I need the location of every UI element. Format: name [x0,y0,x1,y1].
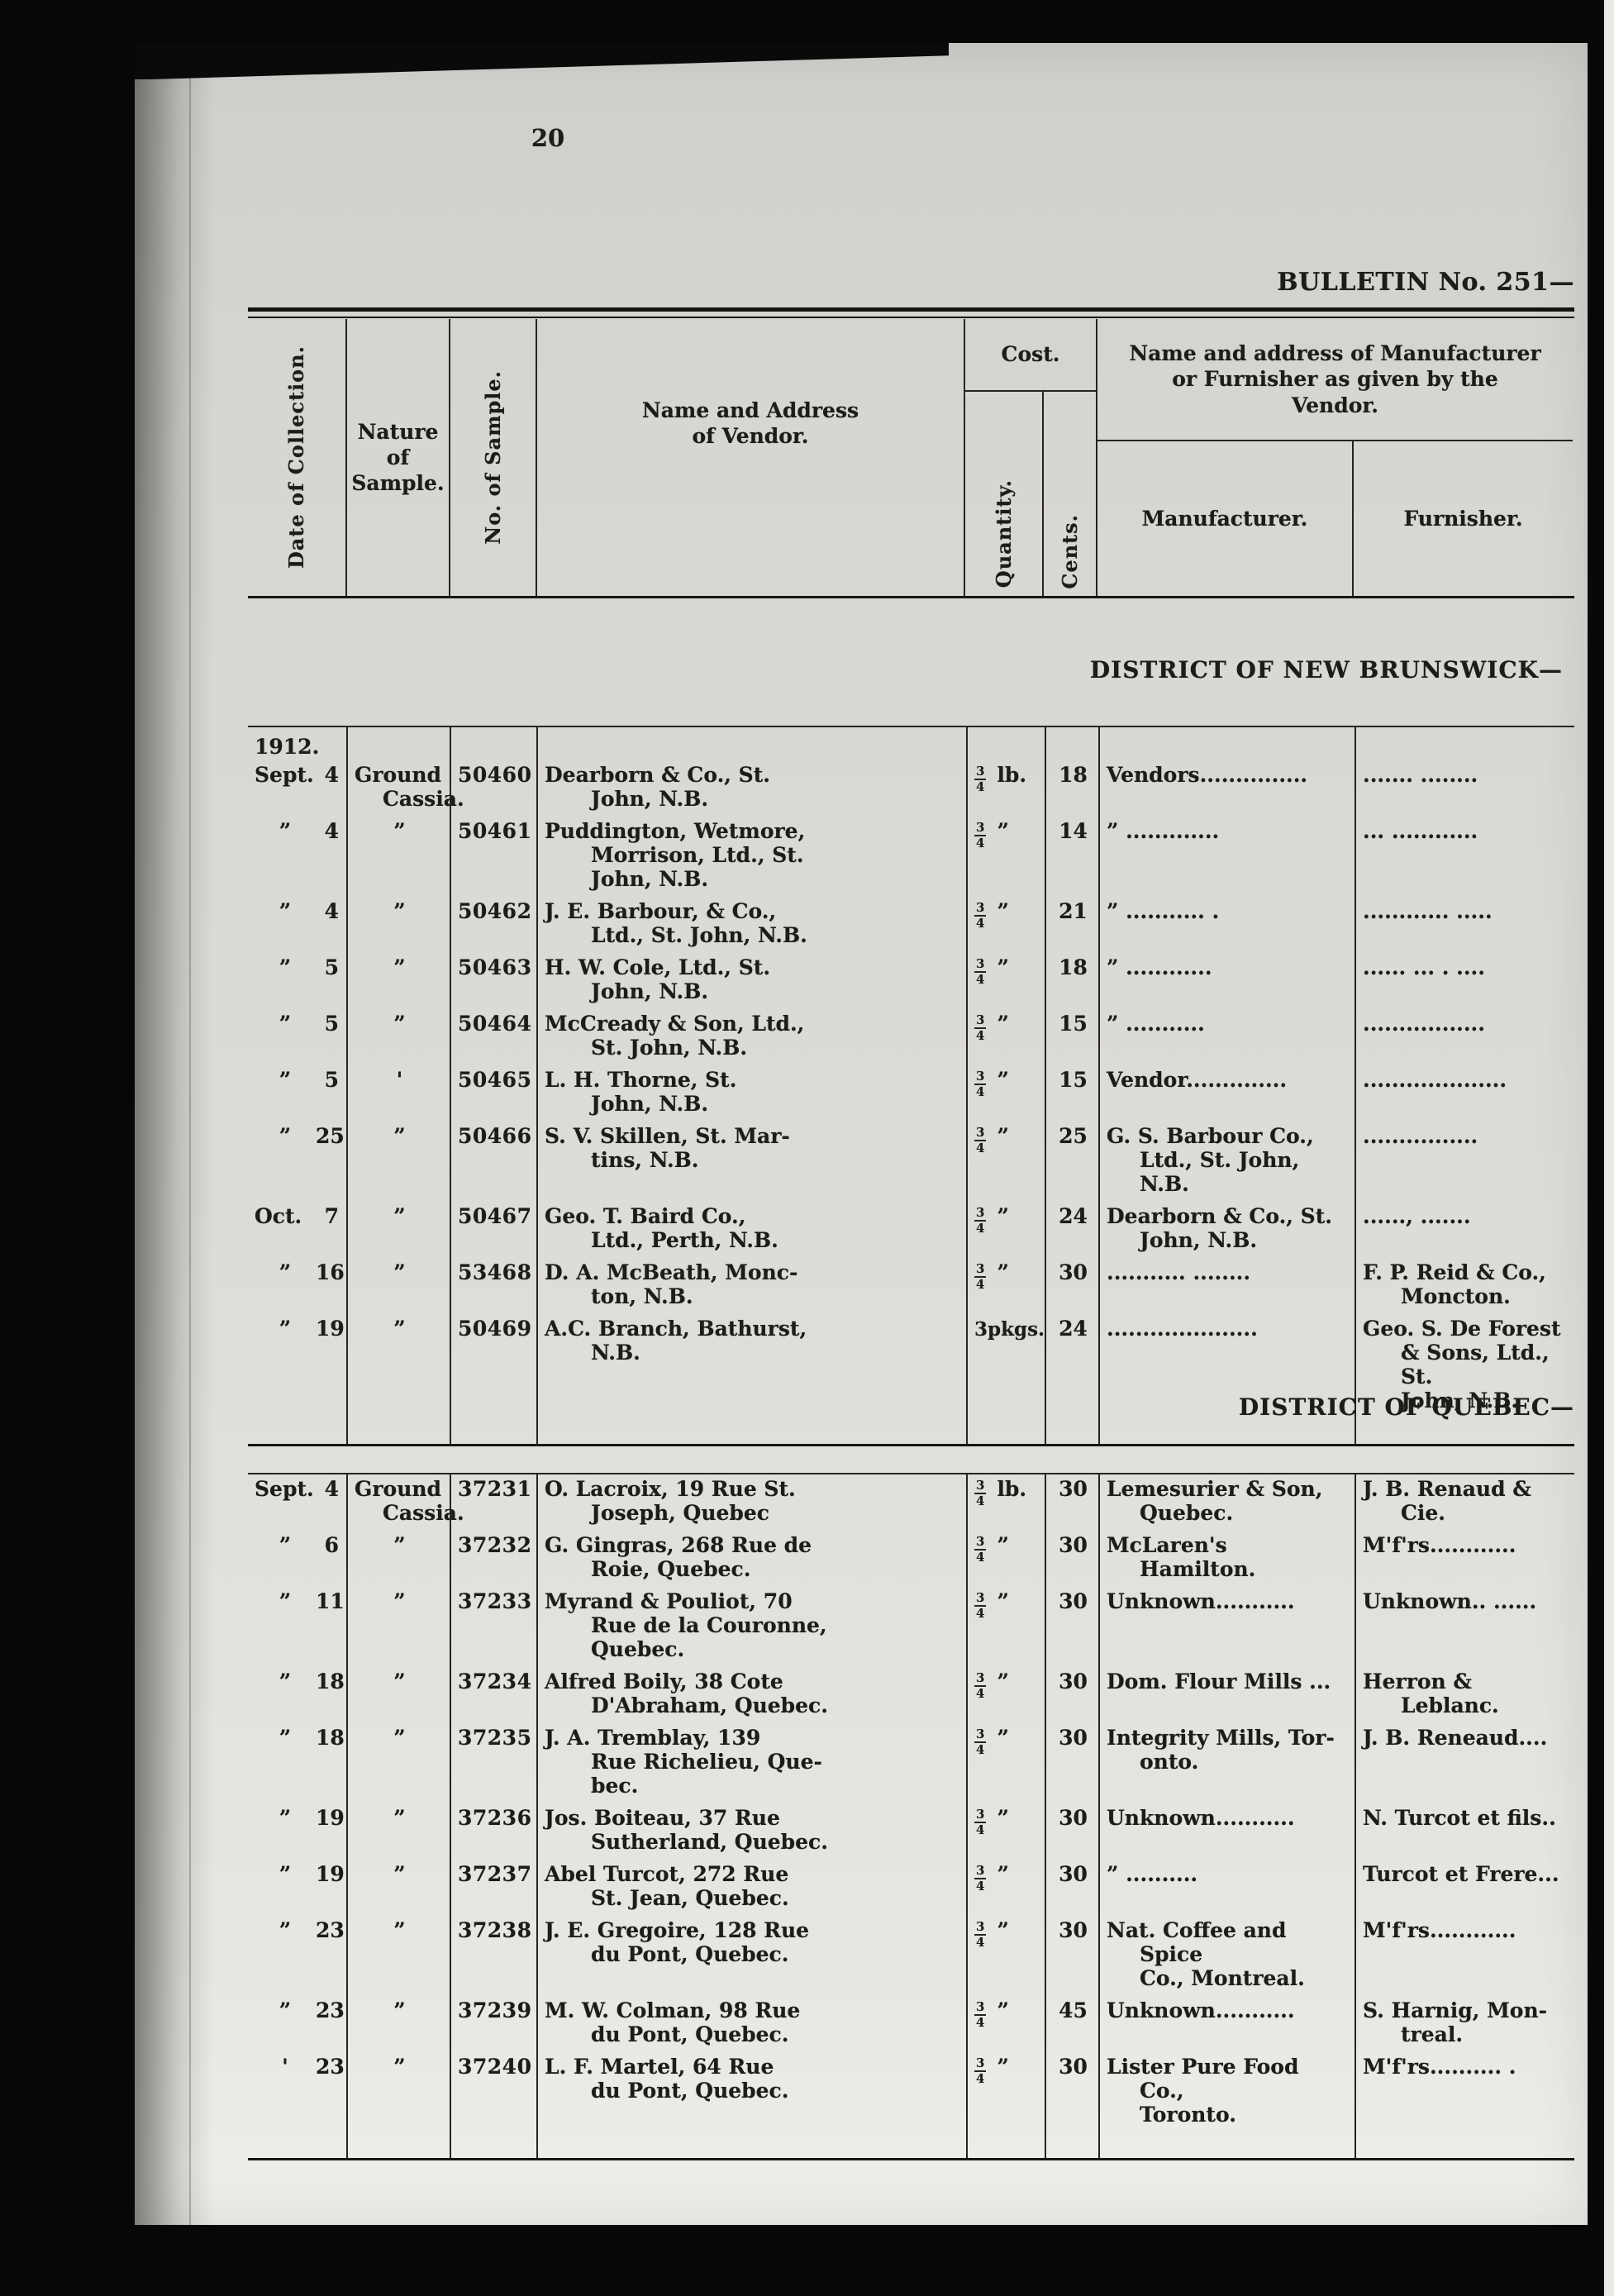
furnisher-text: ............ ..... [1363,899,1569,923]
col-header-sample-no-label: No. of Sample. [481,370,506,545]
cell-cents: 30 [1045,1916,1099,1996]
cell-sample-no: 50463 [450,953,537,1009]
date-day: 11 [316,1589,339,1613]
cell-vendor: McCready & Son, Ltd., St. John, N.B. [537,1009,967,1065]
cell-sample-no: 50465 [450,1065,537,1122]
cell-nature: ” [347,953,450,1009]
fraction-denominator: 4 [976,1222,984,1235]
cell-quantity: 34lb. [967,1474,1045,1531]
vendor-text: Myrand & Pouliot, 70 Rue de la Couronne,… [545,1589,961,1661]
cell-vendor: Myrand & Pouliot, 70 Rue de la Couronne,… [537,1587,967,1667]
date-month: ' [255,2055,316,2079]
cell-manufacturer: ” ........... . [1099,897,1355,953]
manufacturer-text: Vendor.............. [1107,1068,1350,1092]
cell-vendor: Jos. Boiteau, 37 Rue Sutherland, Quebec. [537,1803,967,1860]
cell-furnisher: ................. [1355,1009,1574,1065]
cell-furnisher: J. B. Renaud & Cie. [1355,1474,1574,1531]
table-row: ”5”50463H. W. Cole, Ltd., St. John, N.B.… [248,953,1574,1009]
quantity-unit: ” [997,899,1008,923]
vendor-text: L. H. Thorne, St. John, N.B. [545,1068,961,1116]
date-month: Oct. [255,1204,316,1228]
new-brunswick-table: 1912.Sept.4Ground Cassia.50460Dearborn &… [248,726,1574,1446]
table-row: ”19”37236Jos. Boiteau, 37 Rue Sutherland… [248,1803,1574,1860]
col-header-furnisher-label: Furnisher. [1403,506,1522,531]
nature-text: ” [355,1670,445,1693]
cell-nature: ” [347,1803,450,1860]
bulletin-heading: BULLETIN No. 251— [1277,268,1574,297]
col-header-cents-label: Cents. [1058,514,1083,589]
cell-date: Sept.4 [248,1474,347,1531]
cell-furnisher: Herron & Leblanc. [1355,1667,1574,1723]
col-header-manufacturer-group: Name and address of Manufacturer or Furn… [1097,319,1573,596]
date-day: 5 [316,955,339,979]
fraction-numerator: 3 [974,1263,986,1278]
quantity-unit: ” [997,1806,1008,1830]
quantity-unit: ” [997,1260,1008,1284]
date-day: 4 [316,763,339,787]
cell-nature [347,726,450,760]
fraction-denominator: 4 [976,1141,984,1155]
scan-edge-right [1604,0,1614,2296]
furnisher-text: M'f'rs............ [1363,1533,1569,1557]
cell-quantity: 3pkgs. [967,1314,1045,1446]
manufacturer-text: ” ........... [1107,1012,1350,1036]
date-day: 25 [316,1124,339,1148]
cell-furnisher: Unknown.. ...... [1355,1587,1574,1667]
fraction-denominator: 4 [976,836,984,850]
cell-cents: 30 [1045,2052,1099,2160]
table-row: ”16”53468D. A. McBeath, Monc- ton, N.B.3… [248,1258,1574,1314]
cell-vendor: H. W. Cole, Ltd., St. John, N.B. [537,953,967,1009]
cell-quantity: 34” [967,953,1045,1009]
col-header-date-label: Date of Collection. [284,345,309,569]
manufacturer-text: ” ............ [1107,955,1350,979]
date-day: 23 [316,2055,339,2079]
cell-vendor: S. V. Skillen, St. Mar- tins, N.B. [537,1122,967,1202]
cell-date: ”19 [248,1803,347,1860]
cell-sample-no: 53468 [450,1258,537,1314]
cell-vendor: Puddington, Wetmore, Morrison, Ltd., St.… [537,817,967,897]
cell-cents: 30 [1045,1860,1099,1916]
cell-quantity: 34” [967,1122,1045,1202]
vendor-text: S. V. Skillen, St. Mar- tins, N.B. [545,1124,961,1172]
quantity-fraction: 34 [974,1536,986,1564]
date-month: ” [255,1260,316,1284]
nature-text: ” [355,1533,445,1557]
date-month: ” [255,1012,316,1036]
date-month: ” [255,1124,316,1148]
cell-vendor: Geo. T. Baird Co., Ltd., Perth, N.B. [537,1202,967,1258]
cell-furnisher: .................... [1355,1065,1574,1122]
scanned-page: { "colors": { "background": "#070707", "… [0,0,1614,2296]
cell-manufacturer: Unknown........... [1099,1803,1355,1860]
table-row: ”18”37235J. A. Tremblay, 139 Rue Richeli… [248,1723,1574,1803]
date-month: Sept. [255,763,316,787]
fraction-numerator: 3 [974,1014,986,1029]
cell-furnisher: S. Harnig, Mon- treal. [1355,1996,1574,2052]
cell-vendor: G. Gingras, 268 Rue de Roie, Quebec. [537,1531,967,1587]
cell-sample-no: 37237 [450,1860,537,1916]
vendor-text: D. A. McBeath, Monc- ton, N.B. [545,1260,961,1308]
date-day: 4 [316,899,339,923]
cell-nature: ” [347,1122,450,1202]
furnisher-text: S. Harnig, Mon- treal. [1363,1998,1569,2046]
quantity-fraction: 34 [974,822,986,850]
quantity-unit: ” [997,1533,1008,1557]
vendor-text: J. E. Gregoire, 128 Rue du Pont, Quebec. [545,1918,961,1966]
furnisher-text: J. B. Reneaud.... [1363,1726,1569,1750]
cell-date: ”11 [248,1587,347,1667]
quantity-unit: ” [997,1670,1008,1693]
quantity-fraction: 34 [974,1014,986,1042]
fraction-numerator: 3 [974,1865,986,1879]
vendor-text: J. E. Barbour, & Co., Ltd., St. John, N.… [545,899,961,947]
vendor-text: A.C. Branch, Bathurst, N.B. [545,1317,961,1365]
cell-manufacturer: ” ............ [1099,953,1355,1009]
furnisher-text: N. Turcot et fils.. [1363,1806,1569,1830]
cell-quantity: 34” [967,817,1045,897]
cell-date: ”5 [248,1009,347,1065]
table-row: ”23”37239M. W. Colman, 98 Rue du Pont, Q… [248,1996,1574,2052]
cell-furnisher: M'f'rs............ [1355,1916,1574,1996]
manufacturer-text: Lister Pure Food Co., Toronto. [1107,2055,1350,2127]
col-header-nature: Nature of Sample. [347,319,450,596]
date-day: 5 [316,1068,339,1092]
manufacturer-text: Unknown........... [1107,1998,1350,2022]
table-row: Oct.7”50467Geo. T. Baird Co., Ltd., Pert… [248,1202,1574,1258]
nature-text: ” [355,1918,445,1942]
quantity-fraction: 34 [974,2057,986,2085]
cell-nature: ” [347,1314,450,1446]
cell-quantity: 34” [967,1667,1045,1723]
date-day: 18 [316,1726,339,1750]
quebec-table: Sept.4Ground Cassia.37231O. Lacroix, 19 … [248,1473,1574,2160]
vendor-text: H. W. Cole, Ltd., St. John, N.B. [545,955,961,1003]
cell-quantity: 34” [967,1531,1045,1587]
cell-quantity: 34” [967,1258,1045,1314]
fraction-numerator: 3 [974,1127,986,1141]
scan-corner-wedge [135,42,949,79]
manufacturer-text: Nat. Coffee and Spice Co., Montreal. [1107,1918,1350,1990]
quantity-unit: ” [997,955,1008,979]
cell-sample-no: 37234 [450,1667,537,1723]
date-month: ” [255,1533,316,1557]
date-day: 16 [316,1260,339,1284]
cell-cents [1045,726,1099,760]
furnisher-text: F. P. Reid & Co., Moncton. [1363,1260,1569,1308]
cell-sample-no: 37232 [450,1531,537,1587]
quantity-fraction: 34 [974,1865,986,1893]
vendor-text: Alfred Boily, 38 Cote D'Abraham, Quebec. [545,1670,961,1717]
col-header-manufacturer-label: Manufacturer. [1142,506,1308,531]
cell-manufacturer: ..................... [1099,1314,1355,1446]
cell-furnisher: Geo. S. De Forest & Sons, Ltd., St. John… [1355,1314,1574,1446]
date-month: ” [255,1670,316,1693]
cell-manufacturer: ” ........... [1099,1009,1355,1065]
cell-nature: ” [347,1258,450,1314]
cell-quantity: 34” [967,1723,1045,1803]
cell-furnisher: F. P. Reid & Co., Moncton. [1355,1258,1574,1314]
fraction-denominator: 4 [976,1687,984,1700]
nature-text: ” [355,1012,445,1036]
cell-vendor: A.C. Branch, Bathurst, N.B. [537,1314,967,1446]
manufacturer-text: McLaren's Hamilton. [1107,1533,1350,1581]
table-row: ”19”37237Abel Turcot, 272 Rue St. Jean, … [248,1860,1574,1916]
table-row: ”5'50465L. H. Thorne, St. John, N.B.34”1… [248,1065,1574,1122]
cell-date: ”18 [248,1723,347,1803]
date-month: ” [255,1806,316,1830]
cell-vendor: O. Lacroix, 19 Rue St. Joseph, Quebec [537,1474,967,1531]
cell-nature: Ground Cassia. [347,1474,450,1531]
cell-quantity: 34” [967,897,1045,953]
col-header-manufacturer: Manufacturer. [1097,441,1354,596]
cell-sample-no: 37235 [450,1723,537,1803]
cell-furnisher: M'f'rs............ [1355,1531,1574,1587]
vendor-text: Dearborn & Co., St. John, N.B. [545,763,961,811]
col-header-vendor-label: Name and Address of Vendor. [642,398,859,450]
furnisher-text: ....... ........ [1363,763,1569,787]
cell-date: ”19 [248,1314,347,1446]
cell-quantity: 34” [967,1587,1045,1667]
quantity-unit: ” [997,1589,1008,1613]
quantity-fraction: 34 [974,1728,986,1756]
nature-text: ' [355,1068,445,1092]
quantity-text: 3pkgs. [974,1318,1045,1341]
table-row: '23”37240L. F. Martel, 64 Rue du Pont, Q… [248,2052,1574,2160]
cell-date: ”19 [248,1860,347,1916]
cell-date: Sept.4 [248,760,347,817]
cell-cents: 30 [1045,1667,1099,1723]
quantity-fraction: 34 [974,1672,986,1700]
fraction-denominator: 4 [976,1879,984,1893]
fraction-denominator: 4 [976,1551,984,1564]
manufacturer-text: Integrity Mills, Tor- onto. [1107,1726,1350,1774]
quantity-unit: ” [997,1068,1008,1092]
vendor-text: M. W. Colman, 98 Rue du Pont, Quebec. [545,1998,961,2046]
date-day: 5 [316,1012,339,1036]
cell-furnisher: Turcot et Frere... [1355,1860,1574,1916]
cell-date: ”5 [248,953,347,1009]
cell-vendor: Abel Turcot, 272 Rue St. Jean, Quebec. [537,1860,967,1916]
manufacturer-text: ” ........... . [1107,899,1350,923]
date-month: ” [255,1068,316,1092]
quantity-fraction: 34 [974,1207,986,1235]
nature-text: ” [355,2055,445,2079]
cell-cents: 24 [1045,1202,1099,1258]
date-month: Sept. [255,1477,316,1501]
cell-nature: ” [347,897,450,953]
furnisher-text: ................. [1363,1012,1569,1036]
fraction-denominator: 4 [976,1743,984,1756]
col-header-cost-label: Cost. [965,319,1096,392]
date-month: ” [255,1726,316,1750]
vendor-text: Geo. T. Baird Co., Ltd., Perth, N.B. [545,1204,961,1252]
fraction-numerator: 3 [974,822,986,836]
cell-vendor: D. A. McBeath, Monc- ton, N.B. [537,1258,967,1314]
cell-sample-no: 50464 [450,1009,537,1065]
quantity-fraction: 34 [974,1070,986,1098]
cell-date: ”25 [248,1122,347,1202]
cell-quantity: 34” [967,1996,1045,2052]
fraction-denominator: 4 [976,917,984,930]
table-row: ”19”50469A.C. Branch, Bathurst, N.B.3pkg… [248,1314,1574,1446]
cell-date: ”18 [248,1667,347,1723]
manufacturer-text: Lemesurier & Son, Quebec. [1107,1477,1350,1525]
cell-quantity: 34” [967,1202,1045,1258]
cost-subcolumns: Quantity. Cents. [965,392,1096,596]
cell-date: Oct.7 [248,1202,347,1258]
furnisher-text: J. B. Renaud & Cie. [1363,1477,1569,1525]
date-day: 4 [316,819,339,843]
cell-cents: 14 [1045,817,1099,897]
cell-vendor: M. W. Colman, 98 Rue du Pont, Quebec. [537,1996,967,2052]
fraction-denominator: 4 [976,2016,984,2029]
quantity-unit: ” [997,1012,1008,1036]
cell-furnisher: J. B. Reneaud.... [1355,1723,1574,1803]
cell-quantity: 34” [967,1009,1045,1065]
cell-vendor: Alfred Boily, 38 Cote D'Abraham, Quebec. [537,1667,967,1723]
col-header-vendor: Name and Address of Vendor. [537,319,965,596]
fraction-denominator: 4 [976,973,984,986]
quantity-unit: lb. [997,1477,1026,1501]
date-day: 19 [316,1317,339,1341]
fraction-denominator: 4 [976,1494,984,1508]
cell-date: ”23 [248,1916,347,1996]
cell-cents: 24 [1045,1314,1099,1446]
table-row: ”5”50464McCready & Son, Ltd., St. John, … [248,1009,1574,1065]
furnisher-text: ................ [1363,1124,1569,1148]
fraction-numerator: 3 [974,2057,986,2072]
manufacturer-text: Unknown........... [1107,1589,1350,1613]
cell-manufacturer: Unknown........... [1099,1587,1355,1667]
table-row: ”23”37238J. E. Gregoire, 128 Rue du Pont… [248,1916,1574,1996]
table-row: ”25”50466S. V. Skillen, St. Mar- tins, N… [248,1122,1574,1202]
district-heading-new-brunswick: DISTRICT OF NEW BRUNSWICK— [1090,656,1563,684]
manufacturer-subcolumns: Manufacturer. Furnisher. [1097,441,1573,596]
cell-quantity: 34” [967,2052,1045,2160]
cell-manufacturer: ” ............. [1099,817,1355,897]
binding-shadow [135,43,214,2225]
cell-cents: 30 [1045,1803,1099,1860]
nature-text: ” [355,1204,445,1228]
cell-quantity: 34” [967,1860,1045,1916]
col-header-cost-group: Cost. Quantity. Cents. [965,319,1097,596]
nature-text: ” [355,1862,445,1886]
furnisher-text: Turcot et Frere... [1363,1862,1569,1886]
cell-date: ”6 [248,1531,347,1587]
col-header-date: Date of Collection. [248,319,347,596]
date-day: 6 [316,1533,339,1557]
quantity-fraction: 34 [974,902,986,930]
fraction-denominator: 4 [976,1278,984,1291]
col-header-cents: Cents. [1044,392,1096,596]
date-day: 4 [316,1477,339,1501]
cell-sample-no: 50466 [450,1122,537,1202]
cell-manufacturer: McLaren's Hamilton. [1099,1531,1355,1587]
table-top-double-rule [248,307,1574,318]
furnisher-text: Unknown.. ...... [1363,1589,1569,1613]
vendor-text: O. Lacroix, 19 Rue St. Joseph, Quebec [545,1477,961,1525]
furnisher-text: ...... ... . .... [1363,955,1569,979]
cell-vendor: L. H. Thorne, St. John, N.B. [537,1065,967,1122]
table-row: ”6”37232G. Gingras, 268 Rue de Roie, Que… [248,1531,1574,1587]
cell-furnisher: ......, ....... [1355,1202,1574,1258]
fraction-denominator: 4 [976,1823,984,1836]
quantity-unit: ” [997,1124,1008,1148]
cell-cents: 30 [1045,1531,1099,1587]
cell-vendor: J. A. Tremblay, 139 Rue Richelieu, Que- … [537,1723,967,1803]
nature-text: Ground Cassia. [355,1477,445,1525]
cell-furnisher: M'f'rs.......... . [1355,2052,1574,2160]
cell-manufacturer: Nat. Coffee and Spice Co., Montreal. [1099,1916,1355,1996]
fraction-numerator: 3 [974,1536,986,1551]
quantity-fraction: 34 [974,2001,986,2029]
quantity-fraction: 34 [974,958,986,986]
nature-text: ” [355,1806,445,1830]
nature-text: ” [355,1998,445,2022]
cell-manufacturer: Vendors............... [1099,760,1355,817]
fraction-numerator: 3 [974,1672,986,1687]
cell-sample-no: 37233 [450,1587,537,1667]
cell-sample-no: 37236 [450,1803,537,1860]
cell-sample-no [450,726,537,760]
date-day: 19 [316,1806,339,1830]
cell-manufacturer: Dom. Flour Mills ... [1099,1667,1355,1723]
cell-nature: ” [347,817,450,897]
date-month: ” [255,899,316,923]
cell-nature: ” [347,1531,450,1587]
year-label: 1912. [255,735,319,759]
cell-furnisher: ................ [1355,1122,1574,1202]
cell-furnisher: ...... ... . .... [1355,953,1574,1009]
cell-nature: ” [347,2052,450,2160]
nature-text: ” [355,1317,445,1341]
cell-sample-no: 37240 [450,2052,537,2160]
date-month: ” [255,1862,316,1886]
furnisher-text: .................... [1363,1068,1569,1092]
cell-manufacturer: Dearborn & Co., St. John, N.B. [1099,1202,1355,1258]
cell-manufacturer: ........... ........ [1099,1258,1355,1314]
col-header-manufacturer-group-label: Name and address of Manufacturer or Furn… [1097,319,1573,441]
nature-text: Ground Cassia. [355,763,445,811]
cell-nature: ” [347,1667,450,1723]
manufacturer-text: Vendors............... [1107,763,1350,787]
cell-date: '23 [248,2052,347,2160]
furnisher-text: Herron & Leblanc. [1363,1670,1569,1717]
table-row: ”11”37233Myrand & Pouliot, 70 Rue de la … [248,1587,1574,1667]
fraction-denominator: 4 [976,1085,984,1098]
cell-nature: ' [347,1065,450,1122]
table-row: Sept.4Ground Cassia.37231O. Lacroix, 19 … [248,1474,1574,1531]
date-day: 23 [316,1998,339,2022]
cell-furnisher: N. Turcot et fils.. [1355,1803,1574,1860]
cell-nature: ” [347,1860,450,1916]
quantity-unit: ” [997,1998,1008,2022]
cell-sample-no: 37238 [450,1916,537,1996]
cell-date: ”16 [248,1258,347,1314]
manufacturer-text: Dom. Flour Mills ... [1107,1670,1350,1693]
quantity-fraction: 34 [974,1127,986,1155]
nature-text: ” [355,955,445,979]
cell-manufacturer: G. S. Barbour Co., Ltd., St. John, N.B. [1099,1122,1355,1202]
cell-cents: 30 [1045,1587,1099,1667]
fraction-denominator: 4 [976,1936,984,1949]
cell-cents: 25 [1045,1122,1099,1202]
date-month: ” [255,1589,316,1613]
nature-text: ” [355,899,445,923]
cell-vendor: Dearborn & Co., St. John, N.B. [537,760,967,817]
cell-cents: 21 [1045,897,1099,953]
